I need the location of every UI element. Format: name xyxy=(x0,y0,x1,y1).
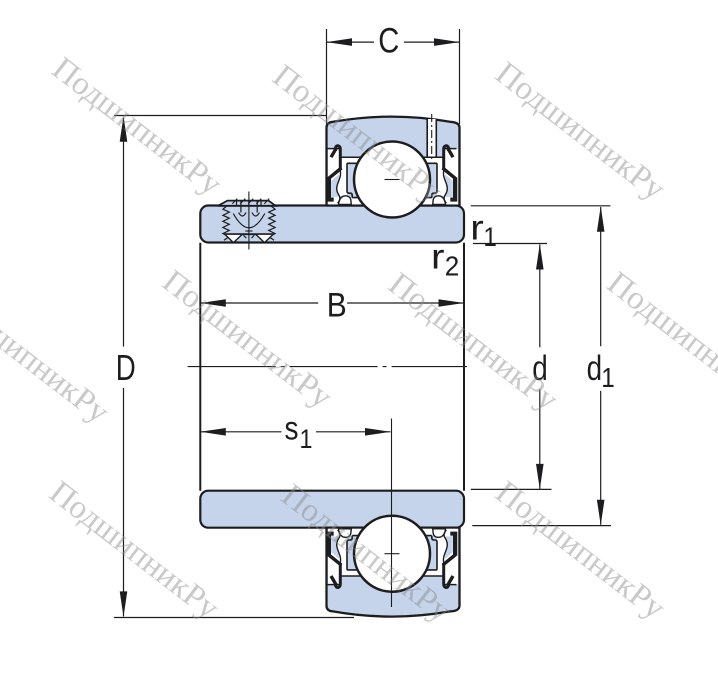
svg-text:s: s xyxy=(285,410,299,447)
svg-text:1: 1 xyxy=(300,424,313,454)
svg-text:d: d xyxy=(587,349,603,388)
svg-text:1: 1 xyxy=(601,362,615,393)
svg-text:2: 2 xyxy=(445,251,460,282)
svg-text:1: 1 xyxy=(483,222,497,252)
svg-text:D: D xyxy=(116,347,136,388)
svg-text:r: r xyxy=(431,238,445,277)
svg-text:B: B xyxy=(327,286,347,324)
svg-text:r: r xyxy=(470,209,484,248)
svg-text:C: C xyxy=(378,22,399,61)
